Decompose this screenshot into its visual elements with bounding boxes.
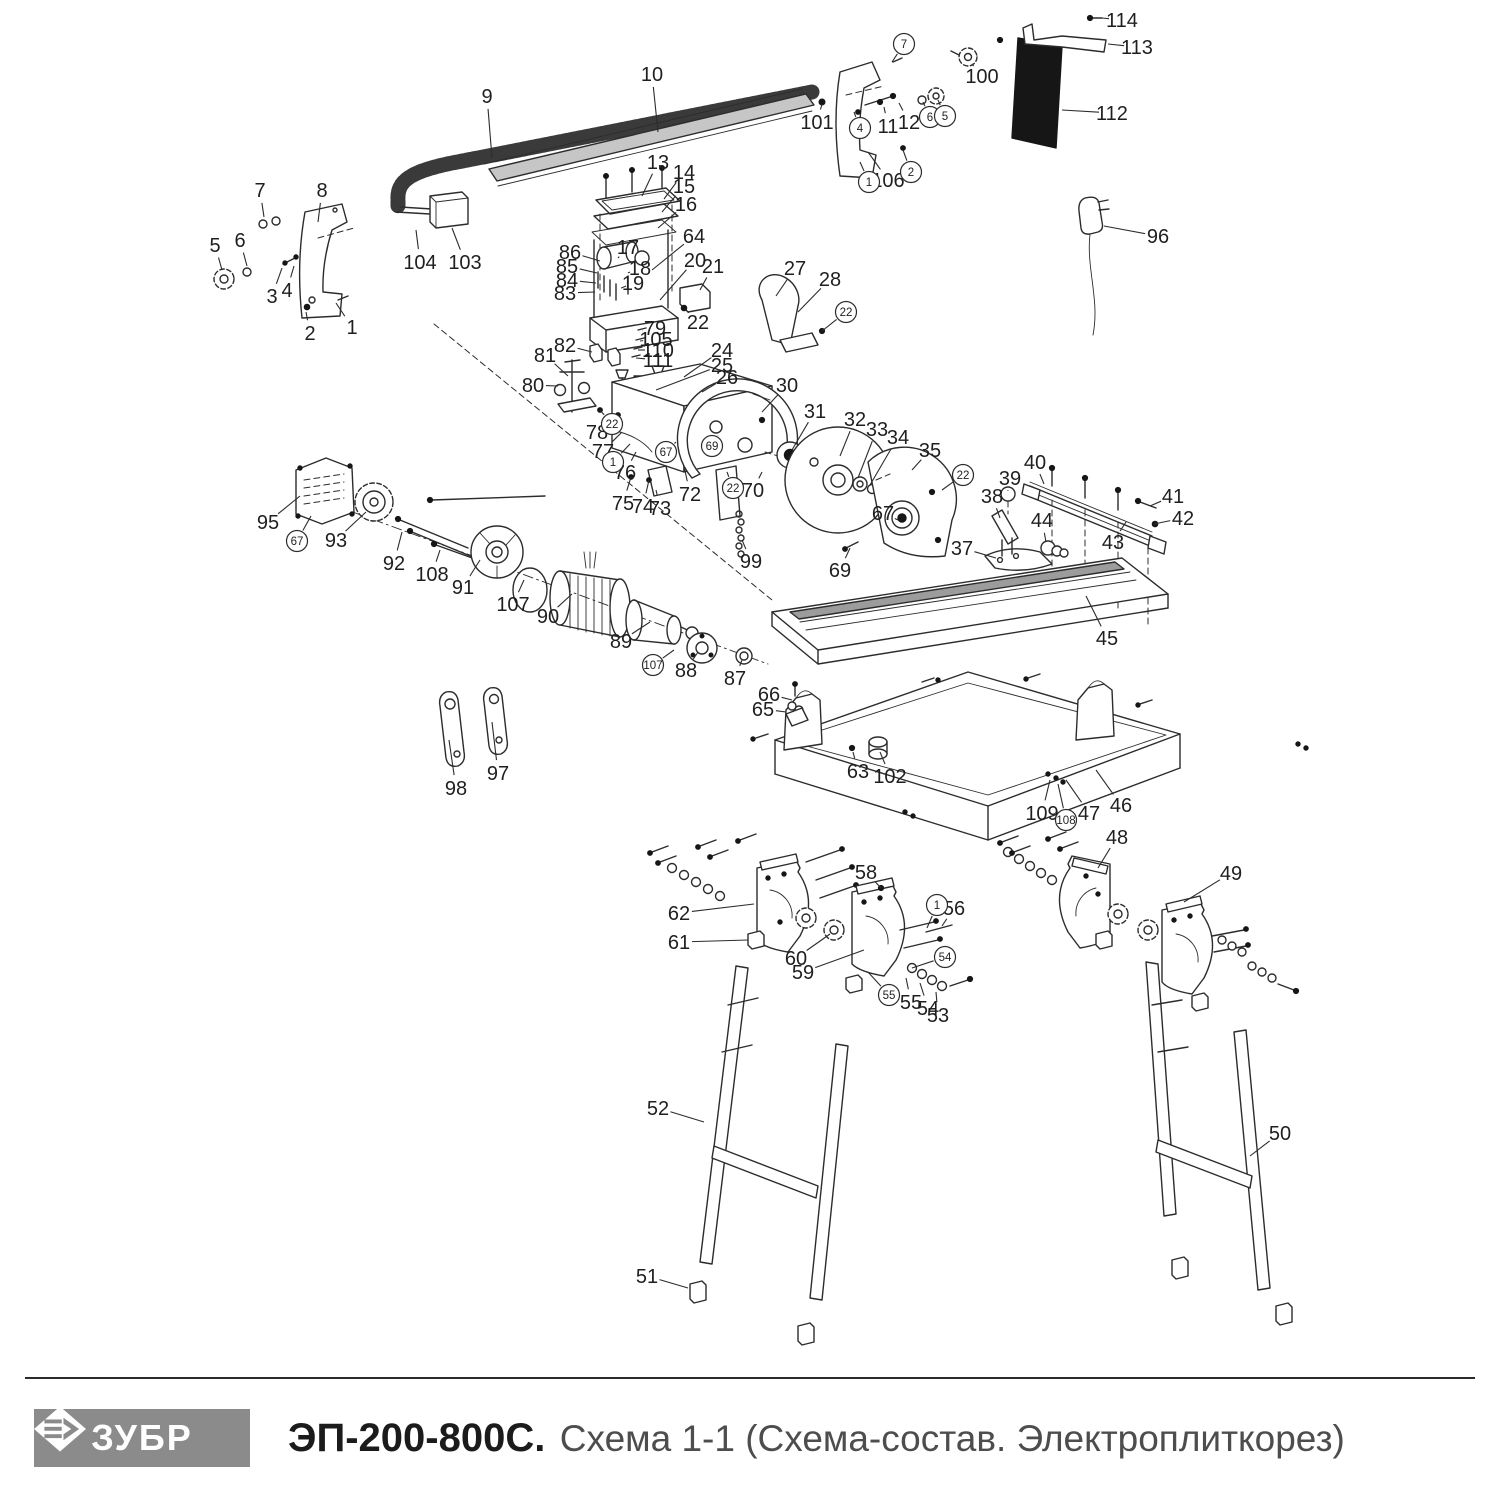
svg-text:107: 107 bbox=[496, 594, 529, 616]
part-ref-circled-67: 67 bbox=[287, 516, 312, 552]
svg-text:62: 62 bbox=[668, 903, 690, 925]
svg-text:89: 89 bbox=[610, 631, 632, 653]
svg-text:31: 31 bbox=[804, 401, 826, 423]
zubr-logo-icon bbox=[34, 1406, 86, 1452]
svg-text:4: 4 bbox=[857, 123, 864, 135]
part-label-80: 80 bbox=[522, 375, 558, 397]
svg-text:13: 13 bbox=[647, 152, 669, 174]
svg-text:87: 87 bbox=[724, 668, 746, 690]
part-label-11: 11 bbox=[878, 107, 899, 138]
svg-text:52: 52 bbox=[647, 1098, 669, 1120]
part-label-112: 112 bbox=[1062, 103, 1128, 125]
part-label-99: 99 bbox=[740, 540, 762, 573]
svg-text:30: 30 bbox=[776, 375, 798, 397]
svg-text:67: 67 bbox=[660, 447, 673, 459]
svg-text:34: 34 bbox=[887, 427, 909, 449]
svg-text:97: 97 bbox=[487, 763, 509, 785]
svg-text:88: 88 bbox=[675, 660, 697, 682]
svg-text:104: 104 bbox=[403, 252, 436, 274]
svg-text:7: 7 bbox=[901, 39, 907, 51]
diagram-art bbox=[214, 16, 1308, 1345]
part-label-92: 92 bbox=[383, 532, 405, 575]
svg-text:45: 45 bbox=[1096, 628, 1118, 650]
svg-text:98: 98 bbox=[445, 778, 467, 800]
part-label-96: 96 bbox=[1104, 226, 1169, 248]
part-label-101: 101 bbox=[800, 104, 833, 134]
footer-divider bbox=[25, 1377, 1475, 1379]
part-label-12: 12 bbox=[898, 103, 920, 134]
part-label-103: 103 bbox=[448, 228, 481, 274]
part-label-69: 69 bbox=[829, 548, 851, 582]
svg-text:75: 75 bbox=[612, 493, 634, 515]
part-ref-circled-7: 7 bbox=[892, 34, 915, 63]
svg-text:28: 28 bbox=[819, 269, 841, 291]
svg-text:19: 19 bbox=[622, 273, 644, 295]
svg-text:37: 37 bbox=[951, 538, 973, 560]
svg-text:72: 72 bbox=[679, 484, 701, 506]
svg-text:49: 49 bbox=[1220, 863, 1242, 885]
model-name: ЭП-200-800С. bbox=[288, 1416, 545, 1460]
part-label-4: 4 bbox=[281, 266, 294, 302]
svg-text:53: 53 bbox=[927, 1005, 949, 1027]
svg-text:16: 16 bbox=[675, 194, 697, 216]
svg-text:42: 42 bbox=[1172, 508, 1194, 530]
svg-text:83: 83 bbox=[554, 283, 576, 305]
svg-text:107: 107 bbox=[643, 660, 662, 672]
part-label-19: 19 bbox=[621, 273, 644, 295]
svg-text:2: 2 bbox=[908, 167, 914, 179]
schema-subtitle: Схема 1-1 (Схема-состав. Электроплиткоре… bbox=[560, 1418, 1345, 1459]
svg-text:54: 54 bbox=[939, 952, 952, 964]
part-label-95: 95 bbox=[257, 496, 300, 534]
svg-text:93: 93 bbox=[325, 530, 347, 552]
part-label-41: 41 bbox=[1150, 486, 1184, 508]
part-ref-circled-22: 22 bbox=[822, 302, 857, 332]
svg-text:102: 102 bbox=[873, 766, 906, 788]
svg-text:63: 63 bbox=[847, 761, 869, 783]
part-label-22: 22 bbox=[686, 310, 709, 334]
svg-text:59: 59 bbox=[792, 962, 814, 984]
svg-text:109: 109 bbox=[1025, 803, 1058, 825]
svg-text:5: 5 bbox=[942, 111, 948, 123]
svg-text:90: 90 bbox=[537, 606, 559, 628]
part-label-65: 65 bbox=[752, 699, 786, 721]
part-ref-circled-69: 69 bbox=[702, 436, 723, 457]
stand-legs bbox=[690, 962, 1292, 1345]
svg-text:22: 22 bbox=[687, 312, 709, 334]
svg-text:47: 47 bbox=[1078, 803, 1100, 825]
part-label-100: 100 bbox=[965, 64, 998, 88]
svg-text:51: 51 bbox=[636, 1266, 658, 1288]
svg-text:99: 99 bbox=[740, 551, 762, 573]
carry-handle bbox=[759, 275, 824, 352]
zubr-logo: ЗУБР bbox=[34, 1409, 250, 1467]
svg-text:55: 55 bbox=[883, 990, 896, 1002]
part-ref-circled-54: 54 bbox=[912, 947, 956, 969]
svg-text:44: 44 bbox=[1031, 510, 1053, 532]
part-label-5: 5 bbox=[209, 235, 222, 270]
part-label-104: 104 bbox=[403, 230, 436, 274]
svg-text:48: 48 bbox=[1106, 827, 1128, 849]
part-label-17: 17 bbox=[617, 237, 639, 259]
link-straps bbox=[440, 688, 508, 767]
svg-text:113: 113 bbox=[1121, 37, 1153, 59]
part-label-114: 114 bbox=[1102, 10, 1138, 32]
svg-text:91: 91 bbox=[452, 577, 474, 599]
svg-text:38: 38 bbox=[981, 486, 1003, 508]
exploded-view-diagram: 1234567891010310411121011061001121131149… bbox=[0, 0, 1500, 1500]
svg-text:1: 1 bbox=[346, 317, 357, 339]
part-label-44: 44 bbox=[1031, 510, 1053, 542]
zubr-logo-text: ЗУБР bbox=[91, 1420, 192, 1456]
svg-text:65: 65 bbox=[752, 699, 774, 721]
part-label-61: 61 bbox=[668, 932, 748, 954]
svg-text:33: 33 bbox=[866, 419, 888, 441]
part-label-46: 46 bbox=[1096, 770, 1132, 817]
svg-text:6: 6 bbox=[234, 230, 245, 252]
svg-text:67: 67 bbox=[291, 536, 304, 548]
svg-text:96: 96 bbox=[1147, 226, 1169, 248]
svg-text:22: 22 bbox=[840, 307, 853, 319]
part-label-1: 1 bbox=[336, 303, 358, 339]
schema-title: ЭП-200-800С. Схема 1-1 (Схема-состав. Эл… bbox=[288, 1416, 1345, 1461]
svg-text:3: 3 bbox=[266, 286, 277, 308]
svg-text:112: 112 bbox=[1096, 103, 1128, 125]
svg-text:7: 7 bbox=[254, 180, 265, 202]
svg-text:32: 32 bbox=[844, 409, 866, 431]
svg-text:108: 108 bbox=[1056, 815, 1075, 827]
part-labels-layer: 1234567891010310411121011061001121131149… bbox=[209, 10, 1291, 1288]
svg-text:12: 12 bbox=[898, 112, 920, 134]
part-label-6: 6 bbox=[234, 230, 247, 266]
splash-flap bbox=[998, 16, 1106, 148]
svg-text:1: 1 bbox=[610, 457, 616, 469]
part-ref-circled-55: 55 bbox=[868, 972, 900, 1006]
part-label-3: 3 bbox=[266, 268, 282, 308]
svg-text:92: 92 bbox=[383, 553, 405, 575]
svg-text:100: 100 bbox=[965, 66, 998, 88]
svg-text:81: 81 bbox=[534, 345, 556, 367]
svg-text:58: 58 bbox=[855, 862, 877, 884]
part-label-88: 88 bbox=[675, 652, 698, 682]
part-ref-circled-67: 67 bbox=[656, 442, 677, 463]
svg-text:6: 6 bbox=[927, 112, 933, 124]
part-label-82: 82 bbox=[554, 335, 592, 357]
svg-text:22: 22 bbox=[957, 470, 970, 482]
svg-text:22: 22 bbox=[606, 419, 619, 431]
svg-text:111: 111 bbox=[643, 350, 673, 372]
svg-text:22: 22 bbox=[727, 483, 740, 495]
svg-text:27: 27 bbox=[784, 258, 806, 280]
svg-text:5: 5 bbox=[209, 235, 220, 257]
svg-text:103: 103 bbox=[448, 252, 481, 274]
svg-text:26: 26 bbox=[716, 367, 738, 389]
svg-text:10: 10 bbox=[641, 64, 663, 86]
svg-text:11: 11 bbox=[878, 116, 899, 138]
svg-text:35: 35 bbox=[919, 440, 941, 462]
svg-text:1: 1 bbox=[866, 177, 872, 189]
svg-text:95: 95 bbox=[257, 512, 279, 534]
part-label-108: 108 bbox=[415, 550, 448, 586]
svg-text:69: 69 bbox=[706, 441, 719, 453]
power-plug bbox=[1079, 197, 1109, 335]
part-label-70: 70 bbox=[742, 472, 764, 502]
svg-text:70: 70 bbox=[742, 480, 764, 502]
svg-text:41: 41 bbox=[1162, 486, 1184, 508]
svg-text:1: 1 bbox=[934, 900, 940, 912]
svg-text:64: 64 bbox=[683, 226, 705, 248]
part-ref-circled-2: 2 bbox=[901, 150, 922, 183]
svg-text:80: 80 bbox=[522, 375, 544, 397]
part-label-67: 67 bbox=[872, 503, 898, 525]
svg-text:2: 2 bbox=[304, 323, 315, 345]
svg-text:67: 67 bbox=[872, 503, 894, 525]
svg-text:46: 46 bbox=[1110, 795, 1132, 817]
part-label-91: 91 bbox=[452, 560, 480, 599]
svg-text:17: 17 bbox=[617, 237, 639, 259]
part-label-7: 7 bbox=[254, 180, 265, 217]
svg-text:43: 43 bbox=[1102, 532, 1124, 554]
svg-text:21: 21 bbox=[702, 256, 724, 278]
part-label-62: 62 bbox=[668, 903, 754, 925]
part-label-49: 49 bbox=[1184, 863, 1242, 902]
part-ref-circled-107: 107 bbox=[643, 650, 675, 676]
part-label-83: 83 bbox=[554, 283, 595, 305]
parts-diagram-page: 1234567891010310411121011061001121131149… bbox=[0, 0, 1500, 1500]
part-label-51: 51 bbox=[636, 1266, 688, 1288]
part-label-74: 74 bbox=[632, 480, 654, 518]
svg-text:4: 4 bbox=[281, 280, 292, 302]
part-label-52: 52 bbox=[647, 1098, 704, 1122]
svg-text:9: 9 bbox=[481, 86, 492, 108]
part-label-113: 113 bbox=[1108, 37, 1153, 59]
svg-text:8: 8 bbox=[316, 180, 327, 202]
svg-text:74: 74 bbox=[632, 496, 654, 518]
footer-bar: ЗУБР ЭП-200-800С. Схема 1-1 (Схема-соста… bbox=[34, 1406, 1470, 1470]
svg-text:114: 114 bbox=[1106, 10, 1138, 32]
svg-text:101: 101 bbox=[800, 112, 833, 134]
junction-box bbox=[396, 192, 468, 228]
svg-text:40: 40 bbox=[1024, 452, 1046, 474]
part-label-42: 42 bbox=[1154, 508, 1194, 530]
svg-text:108: 108 bbox=[415, 564, 448, 586]
part-label-9: 9 bbox=[481, 86, 492, 158]
part-label-40: 40 bbox=[1024, 452, 1046, 484]
svg-text:69: 69 bbox=[829, 560, 851, 582]
svg-text:82: 82 bbox=[554, 335, 576, 357]
svg-text:50: 50 bbox=[1269, 1123, 1291, 1145]
svg-text:61: 61 bbox=[668, 932, 690, 954]
